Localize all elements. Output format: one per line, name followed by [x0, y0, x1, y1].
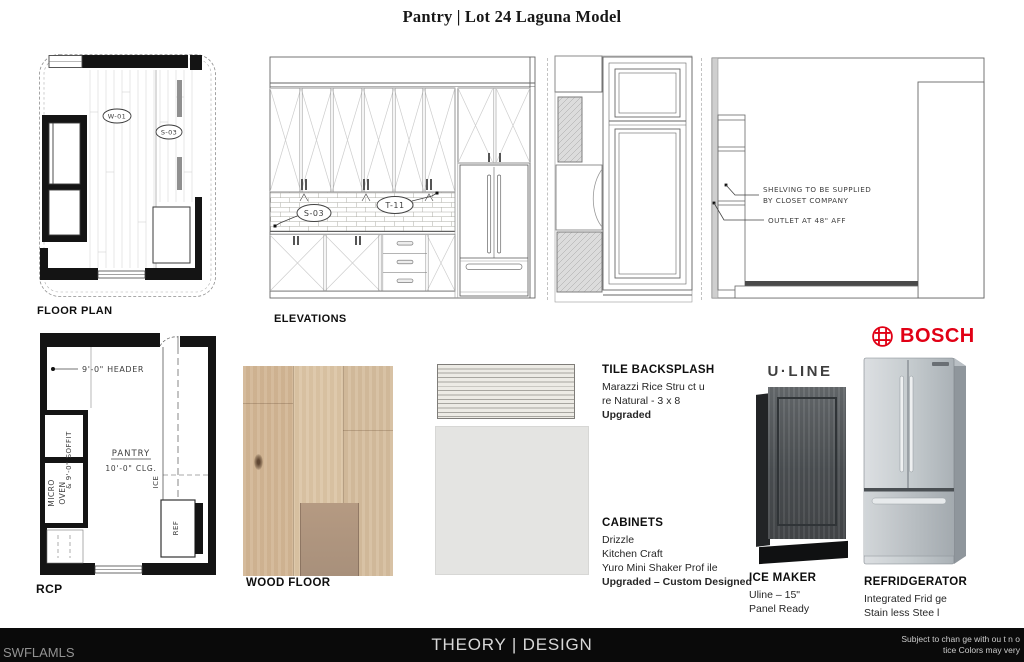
footer-brand: THEORY | DESIGN — [0, 635, 1024, 655]
plank-joint — [243, 403, 293, 404]
pantry-right-cabinet — [918, 82, 984, 298]
ice-maker-block: ICE MAKER Uline – 15" Panel Ready — [749, 571, 859, 616]
rcp-room-labels: PANTRY 10'-0" CLG. — [105, 449, 156, 473]
rcp-lower-left-cabs — [47, 530, 83, 563]
drawer-stack — [383, 242, 427, 283]
wood-floor-sample — [243, 366, 393, 576]
rcp-door-threshold — [95, 566, 142, 573]
shelving-note: SHELVING TO BE SUPPLIED BY CLOSET COMPAN… — [725, 184, 872, 205]
tile-backsplash-line: Marazzi Rice Stru ct u — [602, 380, 752, 394]
svg-text:SHELVING TO BE SUPPLIED: SHELVING TO BE SUPPLIED — [763, 185, 871, 194]
ice-maker-title: ICE MAKER — [749, 571, 859, 585]
svg-text:S-03: S-03 — [161, 129, 177, 137]
footer-bar: THEORY | DESIGN SWFLAMLS Subject to chan… — [0, 628, 1024, 662]
elevation-section-drawing — [551, 55, 694, 305]
dark-plank — [300, 503, 359, 577]
elevation-front-drawing: S-03 T-11 — [266, 55, 537, 305]
pantry-base — [735, 281, 918, 298]
fridge-side-panel — [954, 358, 966, 564]
rcp-drawing: 9'-0" HEADER & 9'-0" SOFFIT MICRO OVEN P… — [38, 330, 218, 578]
svg-text:W-01: W-01 — [108, 113, 126, 121]
svg-text:10'-0" CLG.: 10'-0" CLG. — [105, 464, 156, 473]
mls-watermark: SWFLAMLS — [3, 645, 75, 660]
wood-floor-label: WOOD FLOOR — [246, 577, 331, 589]
rcp-counter-lines — [163, 347, 208, 500]
bosch-wordmark: BOSCH — [900, 325, 975, 348]
floor-plan-tag-w01: W-01 — [103, 109, 131, 123]
ice-maker-base — [759, 541, 848, 564]
tile-backsplash-line: re Natural - 3 x 8 — [602, 394, 752, 408]
footer-disclaimer: Subject to chan ge with ou t n o tice Co… — [901, 634, 1020, 656]
bosch-armature-icon — [871, 325, 894, 348]
floor-plan-label: FLOOR PLAN — [37, 305, 113, 317]
footer-disclaimer-line: tice Colors may very — [901, 645, 1020, 656]
plank-seam — [293, 366, 294, 576]
rcp-label: RCP — [36, 582, 63, 596]
svg-text:MICRO: MICRO — [47, 479, 56, 507]
refrigerator-line: Stain less Stee l — [864, 606, 1004, 620]
section-break-left — [547, 58, 548, 300]
page-title: Pantry | Lot 24 Laguna Model — [0, 7, 1024, 27]
rcp-ref-box: REF — [161, 500, 203, 557]
floor-plan-ref-box — [153, 207, 190, 263]
shelf-column — [718, 115, 745, 290]
ice-maker-panel-frame — [777, 397, 837, 526]
floor-plan-cabinet-boxes — [49, 123, 80, 235]
ice-maker-image — [756, 387, 848, 561]
elevation-pantry-wall-drawing: SHELVING TO BE SUPPLIED BY CLOSET COMPAN… — [708, 52, 988, 304]
section-break-right — [701, 58, 702, 300]
ice-maker-front — [768, 387, 846, 539]
footer-disclaimer-line: Subject to chan ge with ou t n o — [901, 634, 1020, 645]
tile-backsplash-upgraded: Upgraded — [602, 408, 752, 422]
svg-text:OVEN: OVEN — [58, 481, 67, 504]
plank-joint — [343, 430, 393, 431]
elevation-base-cabinets — [270, 231, 455, 291]
floor-plan-drawing: W-01 S-03 — [38, 52, 218, 300]
elevation-fridge-section — [455, 88, 530, 298]
rcp-top-door — [160, 336, 178, 347]
svg-text:BY CLOSET COMPANY: BY CLOSET COMPANY — [763, 196, 848, 205]
tile-backsplash-title: TILE BACKSPLASH — [602, 363, 752, 377]
svg-text:S-03: S-03 — [304, 209, 324, 218]
elevation-upper-cabinets — [270, 88, 455, 201]
svg-text:PANTRY: PANTRY — [112, 449, 151, 459]
tile-backsplash-sample — [437, 364, 575, 419]
floor-plan-window — [49, 56, 82, 68]
refrigerator-image — [860, 350, 970, 576]
uline-logo: U·LINE — [750, 363, 850, 380]
svg-text:& 9'-0" SOFFIT: & 9'-0" SOFFIT — [65, 431, 73, 489]
design-board: Pantry | Lot 24 Laguna Model — [0, 0, 1024, 662]
ice-maker-line: Uline – 15" — [749, 588, 859, 602]
floor-plan-tag-s03: S-03 — [156, 125, 182, 139]
refrigerator-title: REFRIDGERATOR — [864, 575, 1004, 589]
pantry-wall-edge — [712, 58, 718, 298]
bosch-logo: BOSCH — [871, 325, 975, 348]
rcp-micro-oven-box: & 9'-0" SOFFIT MICRO OVEN — [40, 410, 88, 528]
refrigerator-line: Integrated Frid ge — [864, 592, 1004, 606]
drizzle-paint-sample — [435, 426, 589, 575]
section-door-panel — [603, 57, 692, 295]
section-hatched-boxes — [556, 97, 602, 292]
tile-backsplash-block: TILE BACKSPLASH Marazzi Rice Stru ct u r… — [602, 363, 752, 422]
svg-text:T-11: T-11 — [384, 201, 404, 210]
svg-text:9'-0" HEADER: 9'-0" HEADER — [82, 365, 144, 374]
floor-plan-door-threshold — [98, 271, 145, 278]
rcp-ice-label: ICE — [152, 476, 160, 489]
refrigerator-block: REFRIDGERATOR Integrated Frid ge Stain l… — [864, 575, 1004, 620]
ice-maker-line: Panel Ready — [749, 602, 859, 616]
svg-text:REF: REF — [172, 521, 180, 536]
wood-knot — [254, 454, 263, 470]
rcp-header-note: 9'-0" HEADER — [51, 347, 144, 408]
elevations-label: ELEVATIONS — [274, 313, 347, 325]
svg-text:OUTLET AT 48" AFF: OUTLET AT 48" AFF — [768, 216, 846, 225]
